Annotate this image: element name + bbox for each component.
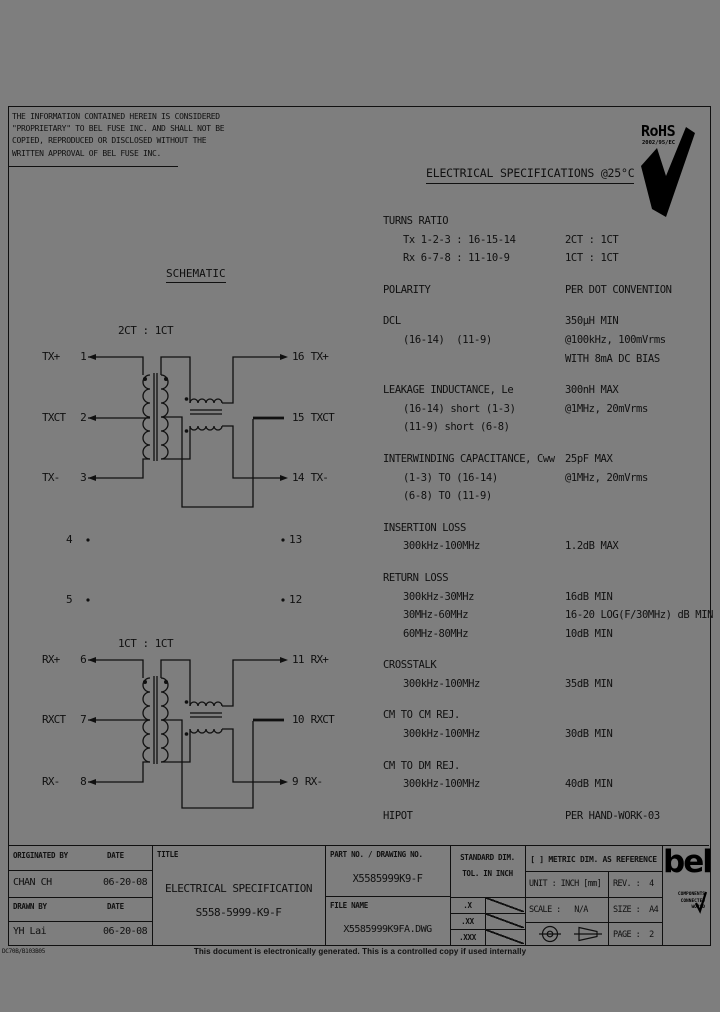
spec-value: 40dB MIN bbox=[565, 778, 612, 790]
pin-label: TX+ bbox=[311, 350, 328, 363]
size-value: A4 bbox=[649, 905, 658, 915]
third-angle-projection-icon bbox=[535, 924, 607, 944]
title-block: ORIGINATED BY DATE CHAN CH 06-20-08 DRAW… bbox=[8, 845, 709, 945]
spec-value: PER DOT CONVENTION bbox=[565, 284, 672, 296]
datasheet-page: THE INFORMATION CONTAINED HEREIN IS CONS… bbox=[0, 0, 720, 1012]
spec-param: 300kHz-100MHz bbox=[403, 778, 480, 790]
spec-title: HIPOT bbox=[383, 810, 413, 822]
spec-param: 300kHz-30MHz bbox=[403, 591, 474, 603]
spec-section-cm-to-cm-rej: CM TO CM REJ. 300kHz-100MHz30dB MIN bbox=[383, 709, 715, 746]
rohs-directive: 2002/95/EC bbox=[642, 140, 675, 146]
spec-value: 10dB MIN bbox=[565, 628, 612, 640]
proprietary-line: THE INFORMATION CONTAINED HEREIN IS CONS… bbox=[12, 111, 175, 123]
spec-param: 300kHz-100MHz bbox=[403, 540, 480, 552]
file-name-value: X5585999K9FA.DWG bbox=[325, 924, 450, 935]
tol-in-inch-label: TOL. IN INCH bbox=[450, 869, 525, 878]
standard-dim-label: STANDARD DIM. bbox=[450, 853, 525, 862]
spec-param: (11-9) short (6-8) bbox=[403, 421, 510, 433]
originated-by-label: ORIGINATED BY bbox=[13, 851, 68, 860]
drawing-title-line2: S558-5999-K9-F bbox=[152, 906, 325, 919]
pin-13: 13 bbox=[289, 533, 302, 546]
page-label: PAGE : bbox=[613, 930, 640, 940]
spec-section-return-loss: RETURN LOSS 300kHz-30MHz16dB MIN 30MHz-6… bbox=[383, 572, 715, 646]
pin-label: RXCT bbox=[311, 713, 334, 726]
spec-value: 16-20 LOG(F/30MHz) dB MIN bbox=[565, 609, 713, 621]
spec-section-crosstalk: CROSSTALK 300kHz-100MHz35dB MIN bbox=[383, 659, 715, 696]
spec-param: (16-14) short (1-3) bbox=[403, 403, 516, 415]
spec-section-insertion-loss: INSERTION LOSS 300kHz-100MHz1.2dB MAX bbox=[383, 522, 715, 559]
spec-title: RETURN LOSS bbox=[383, 572, 448, 584]
pin-rx-plus: RX+6 bbox=[42, 653, 86, 666]
page-value: 2 bbox=[649, 930, 654, 940]
pin-number: 2 bbox=[80, 411, 86, 424]
tol-na-slash bbox=[486, 930, 524, 944]
pin-label: TX+ bbox=[42, 350, 59, 363]
drawn-by-label: DRAWN BY bbox=[13, 902, 47, 911]
spec-value: @100kHz, 100mVrms bbox=[565, 334, 666, 346]
rohs-label: RoHS bbox=[641, 122, 675, 140]
spec-title: TURNS RATIO bbox=[383, 215, 448, 227]
pin-5: 5 bbox=[66, 593, 80, 606]
bel-logo: bel bbox=[663, 844, 711, 880]
footer-note: This document is electronically generate… bbox=[0, 947, 720, 956]
tol-row-xxx: .XXX bbox=[450, 933, 485, 942]
file-name-label: FILE NAME bbox=[330, 901, 368, 910]
page-title: ELECTRICAL SPECIFICATIONS @25°C bbox=[426, 166, 634, 184]
spec-param: 30MHz-60MHz bbox=[403, 609, 468, 621]
pin-label: TXCT bbox=[42, 411, 65, 424]
tol-na-slash bbox=[486, 914, 524, 928]
proprietary-line: COPIED, REPRODUCED OR DISCLOSED WITHOUT … bbox=[12, 135, 175, 147]
spec-value: 300nH MAX bbox=[565, 384, 618, 396]
pin-number: 9 bbox=[292, 775, 298, 788]
tol-row-x: .X bbox=[450, 901, 485, 910]
drawing-title-line1: ELECTRICAL SPECIFICATION bbox=[152, 882, 325, 895]
spec-section-hipot: HIPOTPER HAND-WORK-03 bbox=[383, 810, 715, 829]
page-field: PAGE : 2 bbox=[613, 930, 654, 940]
pin-number: 1 bbox=[80, 350, 86, 363]
pin-12: 12 bbox=[289, 593, 302, 606]
pin-label: RXCT bbox=[42, 713, 65, 726]
metric-note: [ ] METRIC DIM. AS REFERENCE bbox=[525, 855, 662, 864]
spec-title: CROSSTALK bbox=[383, 659, 436, 671]
spec-section-polarity: POLARITYPER DOT CONVENTION bbox=[383, 284, 715, 303]
tx-ratio-label: 2CT : 1CT bbox=[118, 324, 173, 337]
spec-value: 1CT : 1CT bbox=[565, 252, 618, 264]
pin-rx-minus: RX-8 bbox=[42, 775, 86, 788]
scale-field: SCALE : N/A bbox=[529, 905, 588, 915]
spec-value: 30dB MIN bbox=[565, 728, 612, 740]
date-label: DATE bbox=[107, 902, 124, 911]
date-label: DATE bbox=[107, 851, 124, 860]
size-field: SIZE : A4 bbox=[613, 905, 658, 915]
spec-title: CM TO CM REJ. bbox=[383, 709, 460, 721]
spec-title: CM TO DM REJ. bbox=[383, 760, 460, 772]
spec-title: LEAKAGE INDUCTANCE, Le bbox=[383, 384, 513, 396]
scale-label: SCALE : bbox=[529, 905, 561, 915]
pin-4: 4 bbox=[66, 533, 80, 546]
pin-number: 10 bbox=[292, 713, 304, 726]
pin-number: 7 bbox=[80, 713, 86, 726]
pin-rxct: RXCT7 bbox=[42, 713, 86, 726]
rev-value: 4 bbox=[649, 879, 654, 889]
rev-field: REV. : 4 bbox=[613, 879, 654, 889]
pin-label: RX- bbox=[42, 775, 59, 788]
pin-label: TXCT bbox=[311, 411, 334, 424]
spec-title: INTERWINDING CAPACITANCE, Cww bbox=[383, 453, 555, 465]
part-no-label: PART NO. / DRAWING NO. bbox=[330, 850, 423, 859]
pin-txct: TXCT2 bbox=[42, 411, 86, 424]
bel-check-icon bbox=[694, 890, 708, 914]
spec-value: 1.2dB MAX bbox=[565, 540, 618, 552]
spec-value: 16dB MIN bbox=[565, 591, 612, 603]
pin-number: 8 bbox=[80, 775, 86, 788]
spec-param: (6-8) TO (11-9) bbox=[403, 490, 492, 502]
scale-value: N/A bbox=[574, 905, 588, 915]
spec-value: @1MHz, 20mVrms bbox=[565, 472, 648, 484]
schematic-drawing bbox=[30, 262, 370, 832]
spec-value: 35dB MIN bbox=[565, 678, 612, 690]
spec-param: 300kHz-100MHz bbox=[403, 678, 480, 690]
pin-16: 16TX+ bbox=[292, 350, 328, 363]
pin-tx-plus: TX+1 bbox=[42, 350, 86, 363]
pin-number: 3 bbox=[80, 471, 86, 484]
spec-value: WITH 8mA DC BIAS bbox=[565, 353, 660, 365]
spec-value: PER HAND-WORK-03 bbox=[565, 810, 660, 822]
pin-15: 15TXCT bbox=[292, 411, 334, 424]
pin-number: 15 bbox=[292, 411, 304, 424]
spec-section-leakage-inductance: LEAKAGE INDUCTANCE, Le300nH MAX (16-14) … bbox=[383, 384, 715, 440]
spec-title: INSERTION LOSS bbox=[383, 522, 466, 534]
spec-param: (1-3) TO (16-14) bbox=[403, 472, 498, 484]
size-label: SIZE : bbox=[613, 905, 640, 915]
spec-value: 2CT : 1CT bbox=[565, 234, 618, 246]
spec-section-turns-ratio: TURNS RATIO Tx 1-2-3 : 16-15-142CT : 1CT… bbox=[383, 215, 715, 271]
pin-number: 14 bbox=[292, 471, 304, 484]
unit-label: UNIT : INCH [mm] bbox=[529, 879, 601, 889]
spec-value: @1MHz, 20mVrms bbox=[565, 403, 648, 415]
proprietary-line: "PROPRIETARY" TO BEL FUSE INC. AND SHALL… bbox=[12, 123, 175, 135]
spec-param: 300kHz-100MHz bbox=[403, 728, 480, 740]
drawn-date-value: 06-20-08 bbox=[103, 926, 147, 937]
pin-number: 16 bbox=[292, 350, 304, 363]
pin-number: 6 bbox=[80, 653, 86, 666]
drawn-by-value: YH Lai bbox=[13, 926, 46, 937]
rx-ratio-label: 1CT : 1CT bbox=[118, 637, 173, 650]
pin-10: 10RXCT bbox=[292, 713, 334, 726]
pin-tx-minus: TX-3 bbox=[42, 471, 86, 484]
spec-title: DCL bbox=[383, 315, 401, 327]
pin-number: 11 bbox=[292, 653, 304, 666]
rev-label: REV. : bbox=[613, 879, 640, 889]
spec-param: Rx 6-7-8 : 11-10-9 bbox=[403, 252, 510, 264]
tol-row-xx: .XX bbox=[450, 917, 485, 926]
specifications-list: TURNS RATIO Tx 1-2-3 : 16-15-142CT : 1CT… bbox=[383, 215, 715, 841]
pin-label: RX+ bbox=[311, 653, 328, 666]
part-no-value: X5585999K9-F bbox=[325, 873, 450, 885]
spec-param: Tx 1-2-3 : 16-15-14 bbox=[403, 234, 516, 246]
title-label: TITLE bbox=[157, 850, 178, 859]
spec-section-cm-to-dm-rej: CM TO DM REJ. 300kHz-100MHz40dB MIN bbox=[383, 760, 715, 797]
spec-value: 350µH MIN bbox=[565, 315, 618, 327]
proprietary-line: WRITTEN APPROVAL OF BEL FUSE INC. bbox=[12, 148, 175, 160]
pin-9: 9RX- bbox=[292, 775, 322, 788]
spec-title: POLARITY bbox=[383, 284, 430, 296]
originated-date-value: 06-20-08 bbox=[103, 877, 147, 888]
spec-value: 25pF MAX bbox=[565, 453, 612, 465]
pin-14: 14TX- bbox=[292, 471, 328, 484]
tol-na-slash bbox=[486, 898, 524, 912]
pin-label: RX+ bbox=[42, 653, 59, 666]
pin-label: RX- bbox=[305, 775, 322, 788]
spec-param: 60MHz-80MHz bbox=[403, 628, 468, 640]
document-code: DC70B/B103B05 bbox=[2, 948, 45, 955]
pin-11: 11RX+ bbox=[292, 653, 328, 666]
pin-label: TX- bbox=[311, 471, 328, 484]
spec-section-interwinding-capacitance: INTERWINDING CAPACITANCE, Cww25pF MAX (1… bbox=[383, 453, 715, 509]
pin-label: TX- bbox=[42, 471, 59, 484]
spec-section-dcl: DCL350µH MIN (16-14) (11-9)@100kHz, 100m… bbox=[383, 315, 715, 371]
proprietary-notice: THE INFORMATION CONTAINED HEREIN IS CONS… bbox=[8, 106, 178, 167]
spec-param: (16-14) (11-9) bbox=[403, 334, 492, 346]
originated-by-value: CHAN CH bbox=[13, 877, 52, 888]
